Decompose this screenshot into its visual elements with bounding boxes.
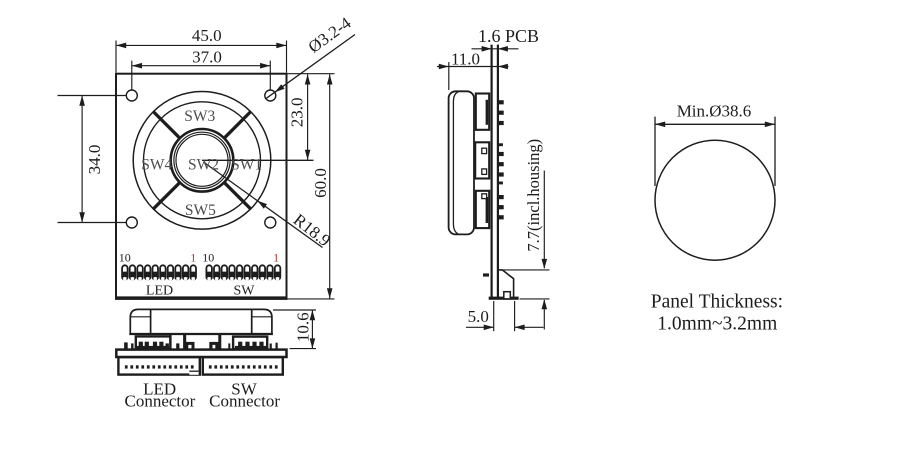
svg-text:Panel Thickness:: Panel Thickness:	[651, 292, 783, 313]
svg-text:SW3: SW3	[184, 108, 215, 125]
svg-text:Connector: Connector	[209, 392, 280, 411]
svg-text:10: 10	[202, 251, 214, 265]
svg-text:10: 10	[119, 251, 131, 265]
svg-text:SW: SW	[234, 284, 256, 299]
svg-text:60.0: 60.0	[311, 168, 330, 198]
svg-text:LED: LED	[146, 284, 173, 299]
svg-text:23.0: 23.0	[287, 98, 306, 128]
svg-text:SW4: SW4	[141, 157, 172, 174]
svg-text:Min.Ø38.6: Min.Ø38.6	[677, 102, 752, 121]
svg-text:1: 1	[190, 251, 196, 265]
svg-text:37.0: 37.0	[192, 48, 222, 67]
svg-text:7.7(incl.housing): 7.7(incl.housing)	[524, 139, 543, 252]
svg-text:1.6 PCB: 1.6 PCB	[478, 26, 539, 46]
svg-text:SW5: SW5	[185, 202, 216, 219]
svg-text:11.0: 11.0	[451, 50, 480, 69]
svg-text:Connector: Connector	[124, 392, 195, 411]
svg-text:1: 1	[273, 251, 279, 265]
svg-text:34.0: 34.0	[85, 145, 104, 175]
svg-text:5.0: 5.0	[468, 307, 489, 326]
svg-text:10.6: 10.6	[294, 312, 313, 342]
svg-text:SW1: SW1	[231, 157, 262, 174]
svg-text:45.0: 45.0	[192, 26, 222, 45]
svg-text:1.0mm~3.2mm: 1.0mm~3.2mm	[657, 314, 777, 335]
svg-text:SW2: SW2	[188, 157, 219, 174]
